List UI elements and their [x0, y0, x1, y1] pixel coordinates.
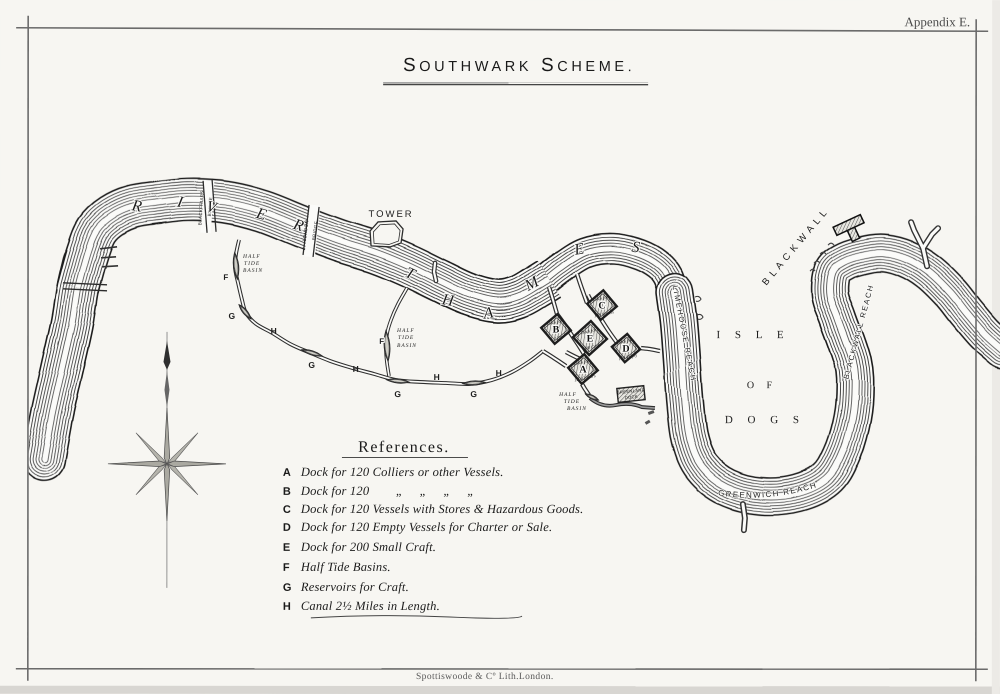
svg-text:O F: O F: [747, 380, 777, 391]
svg-text:F: F: [223, 273, 230, 282]
svg-text:G: G: [470, 389, 479, 399]
svg-text:BASIN: BASIN: [243, 268, 263, 274]
svg-text:G: G: [394, 389, 403, 399]
svg-text:H: H: [496, 368, 505, 378]
svg-text:H: H: [353, 364, 362, 374]
svg-text:G: G: [228, 311, 237, 321]
svg-text:D: D: [283, 522, 291, 534]
svg-text:A: A: [283, 467, 291, 479]
svg-text:D: D: [622, 344, 629, 355]
svg-text:Spottiswoode & Cº Lith.London.: Spottiswoode & Cº Lith.London.: [416, 672, 554, 682]
svg-text:B: B: [283, 486, 291, 498]
svg-text:HALF: HALF: [242, 254, 261, 260]
svg-text:Dock for 120 Vessels with Stor: Dock for 120 Vessels with Stores & Hazar…: [300, 502, 584, 516]
svg-text:Dock for 120 Empty Vessels for: Dock for 120 Empty Vessels for Charter o…: [300, 520, 552, 534]
svg-text:SOUTHWARK SCHEME.: SOUTHWARK SCHEME.: [403, 55, 635, 76]
svg-text:D O G S: D O G S: [725, 414, 805, 426]
svg-text:HALF: HALF: [558, 392, 577, 398]
svg-text:TIDE: TIDE: [244, 261, 260, 267]
svg-text:Dock for 200 Small Craft.: Dock for 200 Small Craft.: [300, 540, 436, 554]
svg-text:TOWER: TOWER: [368, 209, 413, 220]
svg-text:Half Tide Basins.: Half Tide Basins.: [300, 560, 391, 574]
svg-text:BASIN: BASIN: [567, 406, 587, 412]
svg-text:G: G: [283, 582, 292, 594]
svg-text:E: E: [283, 542, 290, 554]
svg-text:I S L E: I S L E: [716, 329, 789, 341]
svg-text:Canal 2½ Miles in Length.: Canal 2½ Miles in Length.: [301, 599, 440, 613]
svg-text:Dock for 120 „ „: Dock for 120 „ „ „ „: [300, 484, 474, 498]
svg-text:E: E: [587, 334, 594, 345]
svg-text:B: B: [553, 325, 560, 336]
svg-text:Appendix E.: Appendix E.: [904, 14, 970, 29]
svg-text:F: F: [379, 337, 386, 346]
svg-text:TIDE: TIDE: [398, 335, 414, 341]
svg-text:Dock for 120 Colliers or other: Dock for 120 Colliers or other Vessels.: [300, 465, 504, 479]
svg-text:C: C: [283, 504, 291, 516]
svg-text:H: H: [271, 326, 280, 336]
svg-text:TIDE: TIDE: [564, 399, 580, 405]
svg-text:BASIN: BASIN: [397, 343, 417, 349]
svg-text:H: H: [434, 372, 443, 382]
svg-text:H: H: [283, 601, 291, 613]
svg-text:References.: References.: [358, 439, 450, 456]
svg-text:C: C: [598, 301, 605, 312]
svg-text:A: A: [579, 365, 587, 376]
svg-text:F: F: [283, 562, 290, 574]
svg-text:G: G: [308, 360, 317, 370]
svg-text:Reservoirs for Craft.: Reservoirs for Craft.: [300, 580, 409, 594]
svg-text:HALF: HALF: [396, 328, 415, 334]
